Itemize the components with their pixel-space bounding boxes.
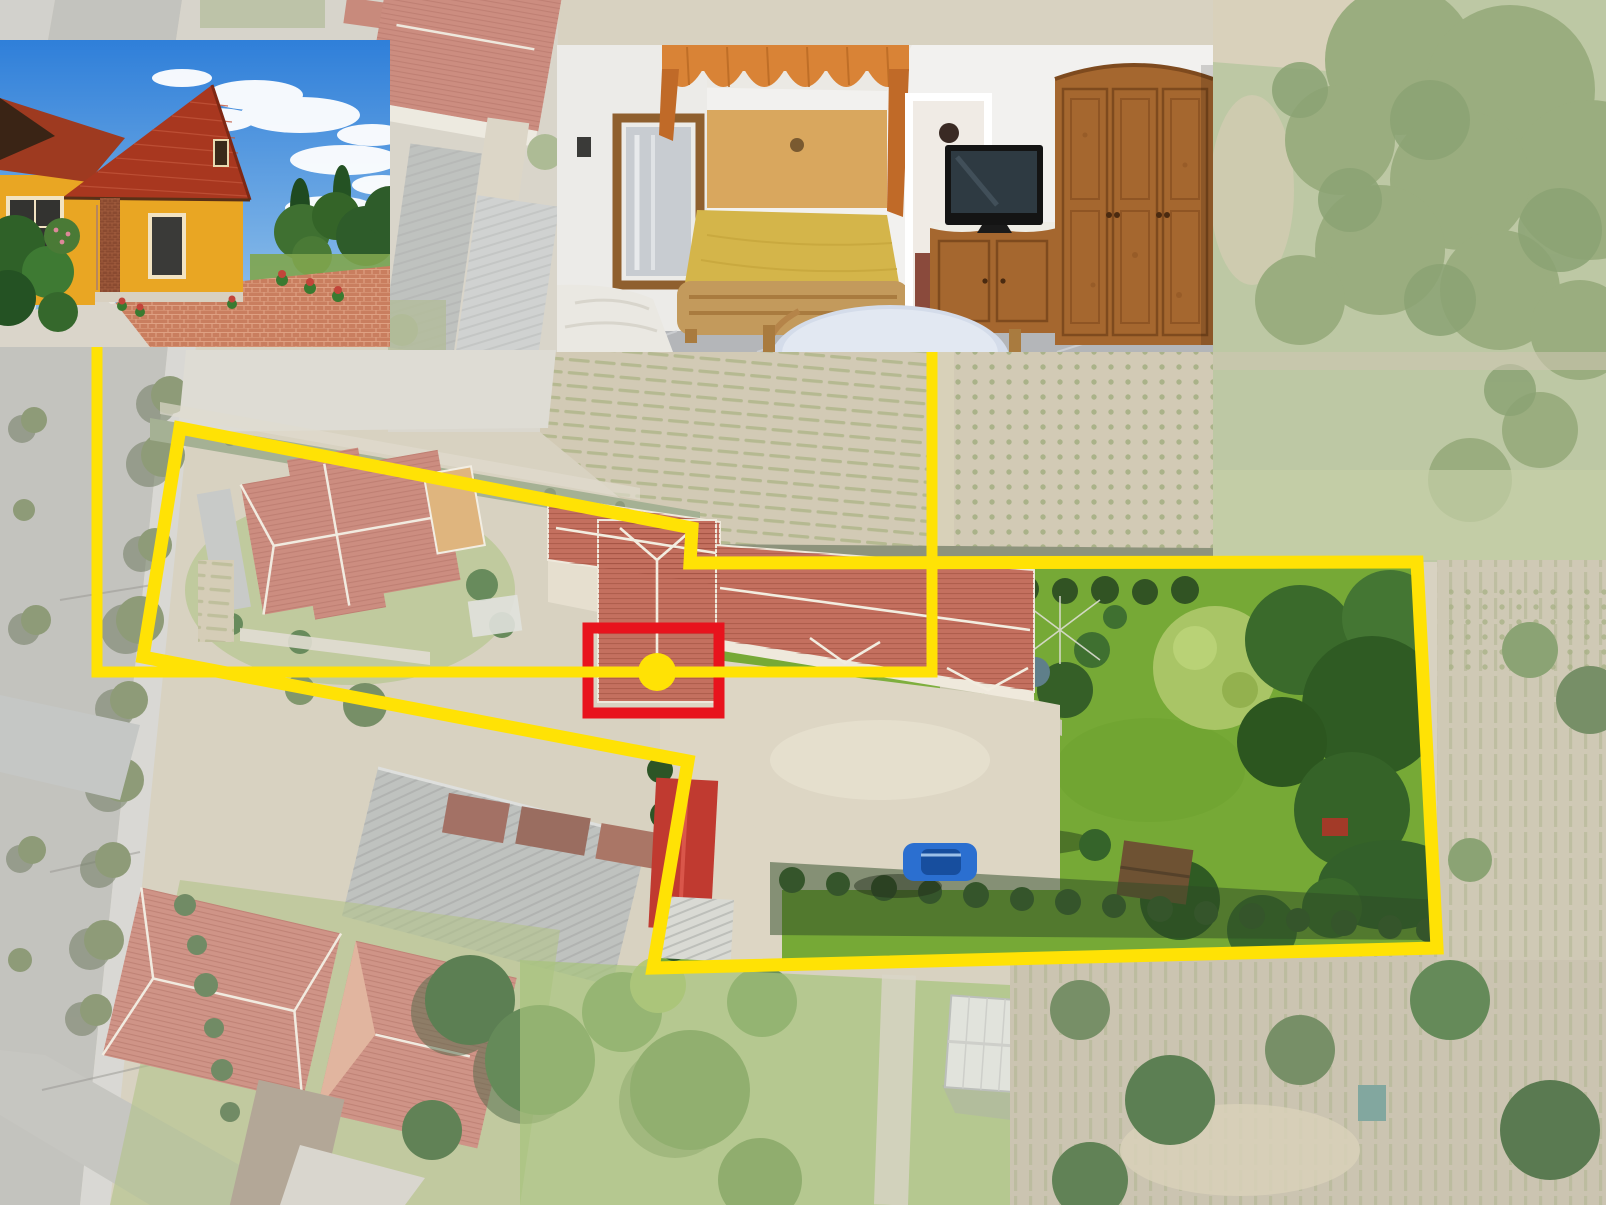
front-bushes <box>0 215 80 332</box>
bedroom-interior-photo <box>557 45 1213 352</box>
house-exterior-drawing <box>0 40 390 347</box>
location-dot <box>638 653 676 691</box>
wall-clock <box>790 138 804 152</box>
gable-window <box>214 140 228 166</box>
wallpaper-headboard <box>707 110 887 208</box>
red-hut <box>1322 818 1348 836</box>
foundation <box>95 292 243 302</box>
light-switch <box>577 137 591 157</box>
bedroom-drawing <box>557 45 1213 352</box>
front-window <box>150 215 184 277</box>
real-estate-aerial-composite <box>0 0 1606 1205</box>
wall-decor <box>939 123 959 143</box>
tv <box>945 145 1043 233</box>
house-exterior-photo <box>0 40 390 347</box>
brick-chimney-strip <box>100 198 120 292</box>
chair-wood <box>763 325 775 352</box>
wardrobe <box>1055 65 1213 345</box>
